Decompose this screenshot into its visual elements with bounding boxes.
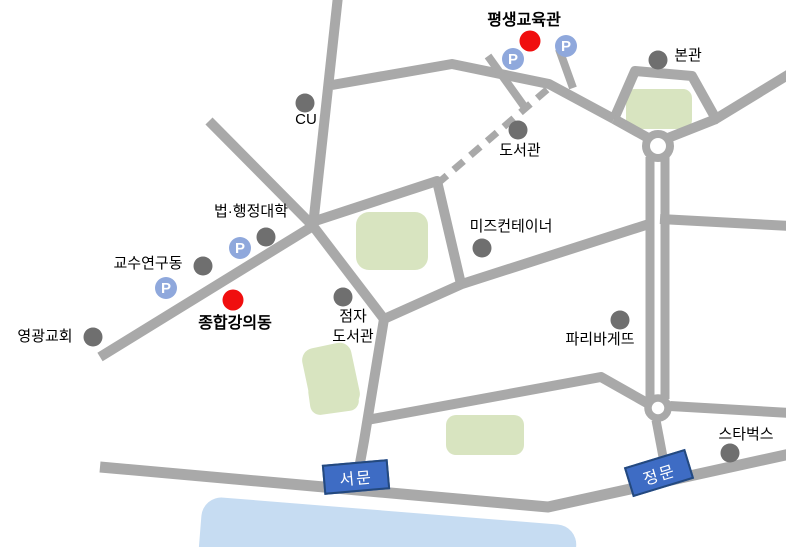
poi-label-doseogwan: 도서관 bbox=[499, 141, 540, 161]
poi-label-beob-haengjeong-daehak: 법·행정대학 bbox=[214, 202, 288, 222]
poi-label-yeonggwang-gyohoe: 영광교회 bbox=[17, 327, 72, 347]
parking-glyph: P bbox=[508, 51, 518, 68]
roundabout-lower bbox=[648, 398, 668, 418]
road-jeongmun-stub bbox=[656, 420, 663, 457]
poi-label-jeomja-line1: 점자 bbox=[332, 307, 373, 327]
poi-label-gyosu-yeongudong: 교수연구동 bbox=[113, 254, 182, 274]
jeongmun-gate-label: 정문 bbox=[639, 457, 678, 490]
seomun-gate-label: 서문 bbox=[338, 464, 373, 491]
marker-dot-bongwan bbox=[649, 51, 668, 70]
road-dashed-path bbox=[437, 88, 549, 184]
marker-dot-gyosu-yeongudong bbox=[194, 257, 213, 276]
parking-glyph: P bbox=[161, 280, 171, 297]
marker-dot-pari-baguette bbox=[611, 311, 630, 330]
road-network bbox=[100, 0, 786, 507]
marker-dot-starbucks bbox=[721, 444, 740, 463]
road-boulevard-stripes bbox=[650, 157, 665, 399]
parking-icon: P bbox=[502, 48, 524, 70]
poi-label-pyeongsaeng-gyoyukgwan: 평생교육관 bbox=[487, 11, 561, 31]
poi-label-mizu-container: 미즈컨테이너 bbox=[470, 217, 553, 237]
marker-dot-beob-haengjeong-daehak bbox=[257, 228, 276, 247]
poi-label-jonghap-gangeuidong: 종합강의동 bbox=[198, 314, 272, 334]
roundabout-upper bbox=[646, 134, 670, 158]
poi-label-jeomja-line2: 도서관 bbox=[332, 327, 373, 347]
road-east-upper bbox=[660, 219, 786, 226]
poi-label-cu: CU bbox=[295, 110, 317, 130]
parking-glyph: P bbox=[561, 38, 571, 55]
poi-label-jeomja-doseogwan: 점자 도서관 bbox=[332, 307, 373, 347]
marker-red-jonghap-gangeuidong bbox=[223, 290, 244, 311]
marker-dot-mizu-container bbox=[473, 239, 492, 258]
green-area-bongwan bbox=[626, 89, 692, 129]
road-east-lower bbox=[670, 406, 786, 413]
marker-dot-jeomja-doseogwan bbox=[334, 288, 353, 307]
parking-glyph: P bbox=[235, 240, 245, 257]
parking-icon: P bbox=[229, 237, 251, 259]
seomun-gate-sign: 서문 bbox=[322, 459, 390, 495]
campus-map: P P P P 평생교육관 본관 CU 도서관 법·행정대학 교수연구동 종합강… bbox=[0, 0, 786, 547]
road-north-top bbox=[332, 64, 614, 119]
road-northeast-exit bbox=[714, 73, 786, 120]
poi-label-starbucks: 스타벅스 bbox=[718, 425, 773, 445]
marker-dot-doseogwan bbox=[509, 121, 528, 140]
marker-red-pyeongsaeng-gyoyukgwan bbox=[520, 31, 541, 52]
parking-icon: P bbox=[555, 35, 577, 57]
road-south-east bbox=[367, 377, 647, 420]
poi-label-bongwan: 본관 bbox=[674, 46, 702, 66]
poi-label-pari-baguette: 파리바게뜨 bbox=[565, 330, 634, 350]
green-area-seomun bbox=[307, 377, 360, 416]
parking-icon: P bbox=[155, 277, 177, 299]
marker-dot-yeonggwang-gyohoe bbox=[84, 328, 103, 347]
road-southwest-diagonal bbox=[100, 226, 313, 357]
green-area-south bbox=[446, 415, 524, 455]
green-area-central bbox=[356, 212, 428, 270]
